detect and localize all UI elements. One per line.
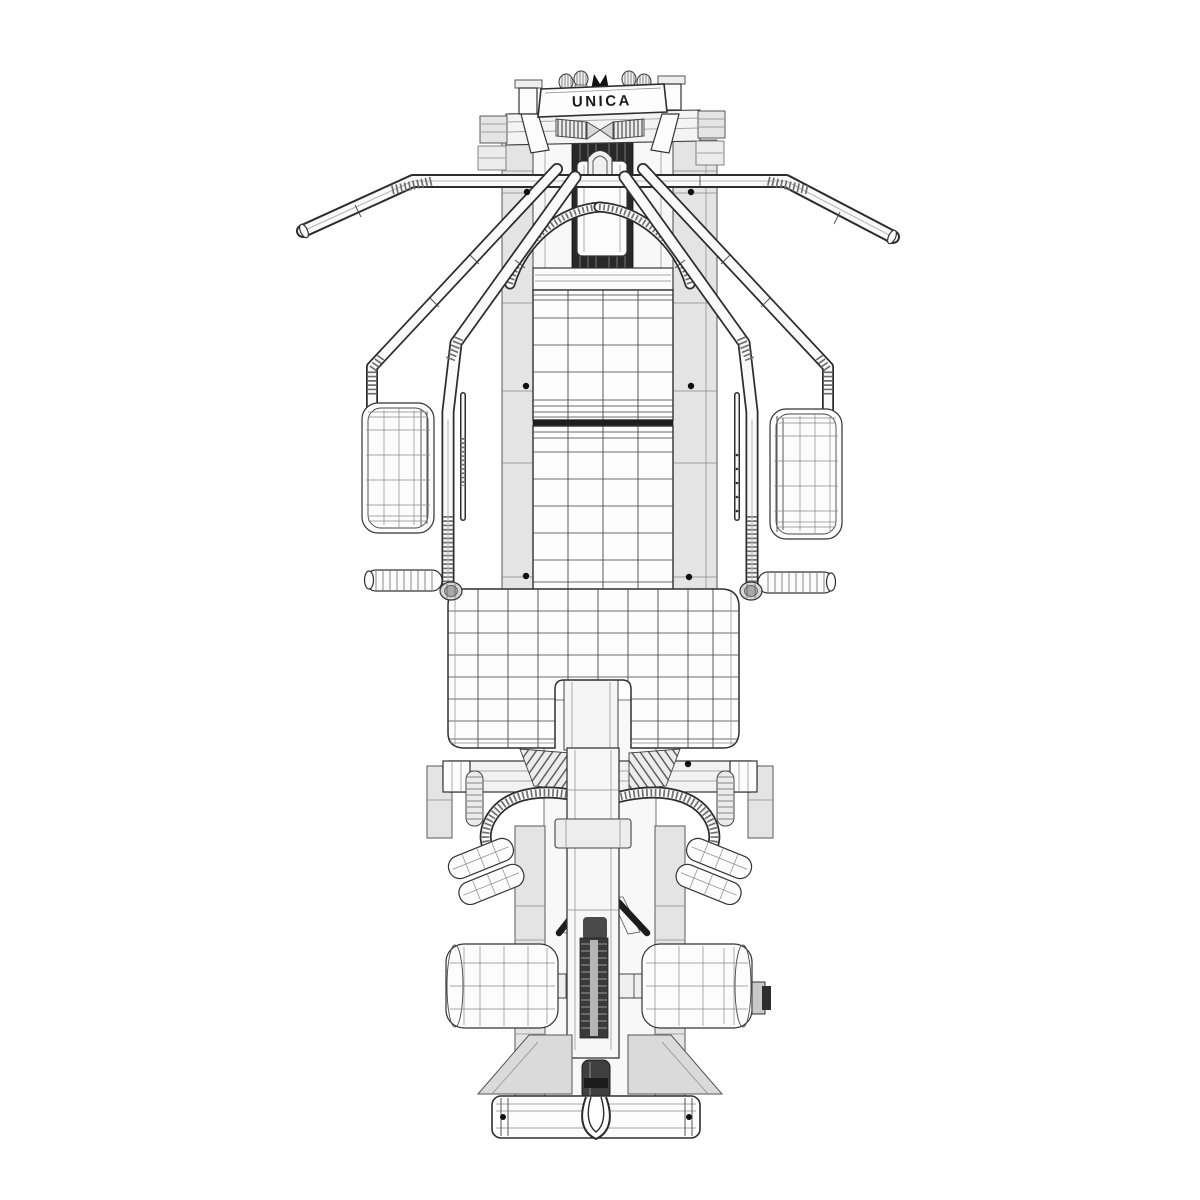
pivot-cap-left	[440, 582, 462, 600]
wireframe-render-canvas: UNICA	[0, 0, 1200, 1200]
cable-drum	[583, 917, 607, 940]
brand-label: UNICA	[572, 92, 632, 110]
central-rail	[555, 748, 631, 1058]
rail-joint-block	[555, 819, 631, 848]
pec-pad-left	[362, 403, 434, 533]
pivot-cap-right	[740, 582, 762, 600]
weight-stack-shroud	[533, 290, 673, 611]
head-wing-left	[480, 116, 507, 143]
gym-machine-wireframe: UNICA	[0, 0, 1200, 1200]
hand-grip-left	[365, 570, 443, 591]
leg-roller-right	[642, 944, 771, 1028]
pec-pad-right	[770, 409, 842, 539]
head-wing-right	[698, 111, 725, 138]
adjustment-bar-right	[736, 395, 739, 518]
hand-grip-right	[758, 572, 836, 593]
selector-hook	[588, 151, 612, 179]
leg-roller-left	[446, 944, 558, 1028]
